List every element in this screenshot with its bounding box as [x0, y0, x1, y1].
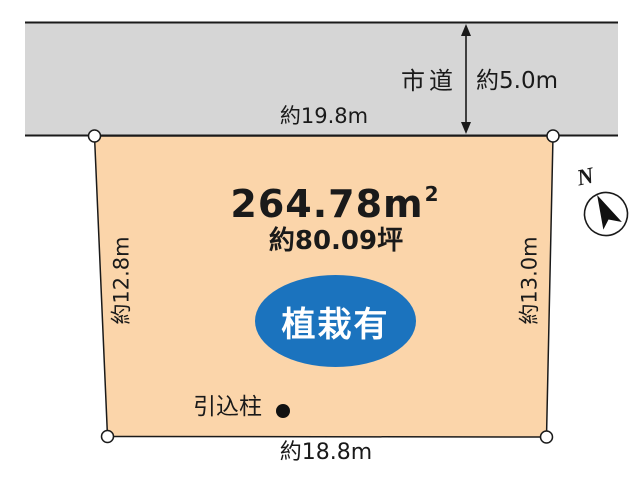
corner-marker-bottom-right: [541, 431, 553, 443]
land-plot-diagram: 市道 約5.0m 約19.8m 約12.8m 約13.0m 約18.8m 264…: [0, 0, 639, 478]
dimension-left-label: 約12.8m: [110, 221, 133, 341]
area-tsubo: 約80.09坪: [269, 227, 403, 256]
dimension-top-label: 約19.8m: [280, 105, 368, 128]
dimension-right-label: 約13.0m: [518, 221, 541, 341]
corner-marker-top-left: [89, 130, 101, 142]
road-width-label: 約5.0m: [476, 69, 558, 94]
service-pole-dot: [276, 404, 290, 418]
service-pole-label: 引込柱: [193, 395, 262, 420]
area-square-meters: 264.78m2: [230, 183, 439, 226]
road-name-label: 市道: [401, 68, 457, 94]
dimension-bottom-label: 約18.8m: [280, 441, 372, 465]
area-superscript: 2: [425, 182, 440, 206]
planting-badge: 植栽有: [255, 275, 416, 367]
area-value: 264.78: [230, 182, 383, 226]
corner-marker-bottom-left: [102, 431, 114, 443]
planting-label: 植栽有: [282, 297, 390, 346]
compass-icon: [577, 185, 634, 242]
service-pole: 引込柱: [193, 395, 290, 420]
corner-marker-top-right: [547, 130, 559, 142]
area-unit: m: [383, 182, 424, 226]
